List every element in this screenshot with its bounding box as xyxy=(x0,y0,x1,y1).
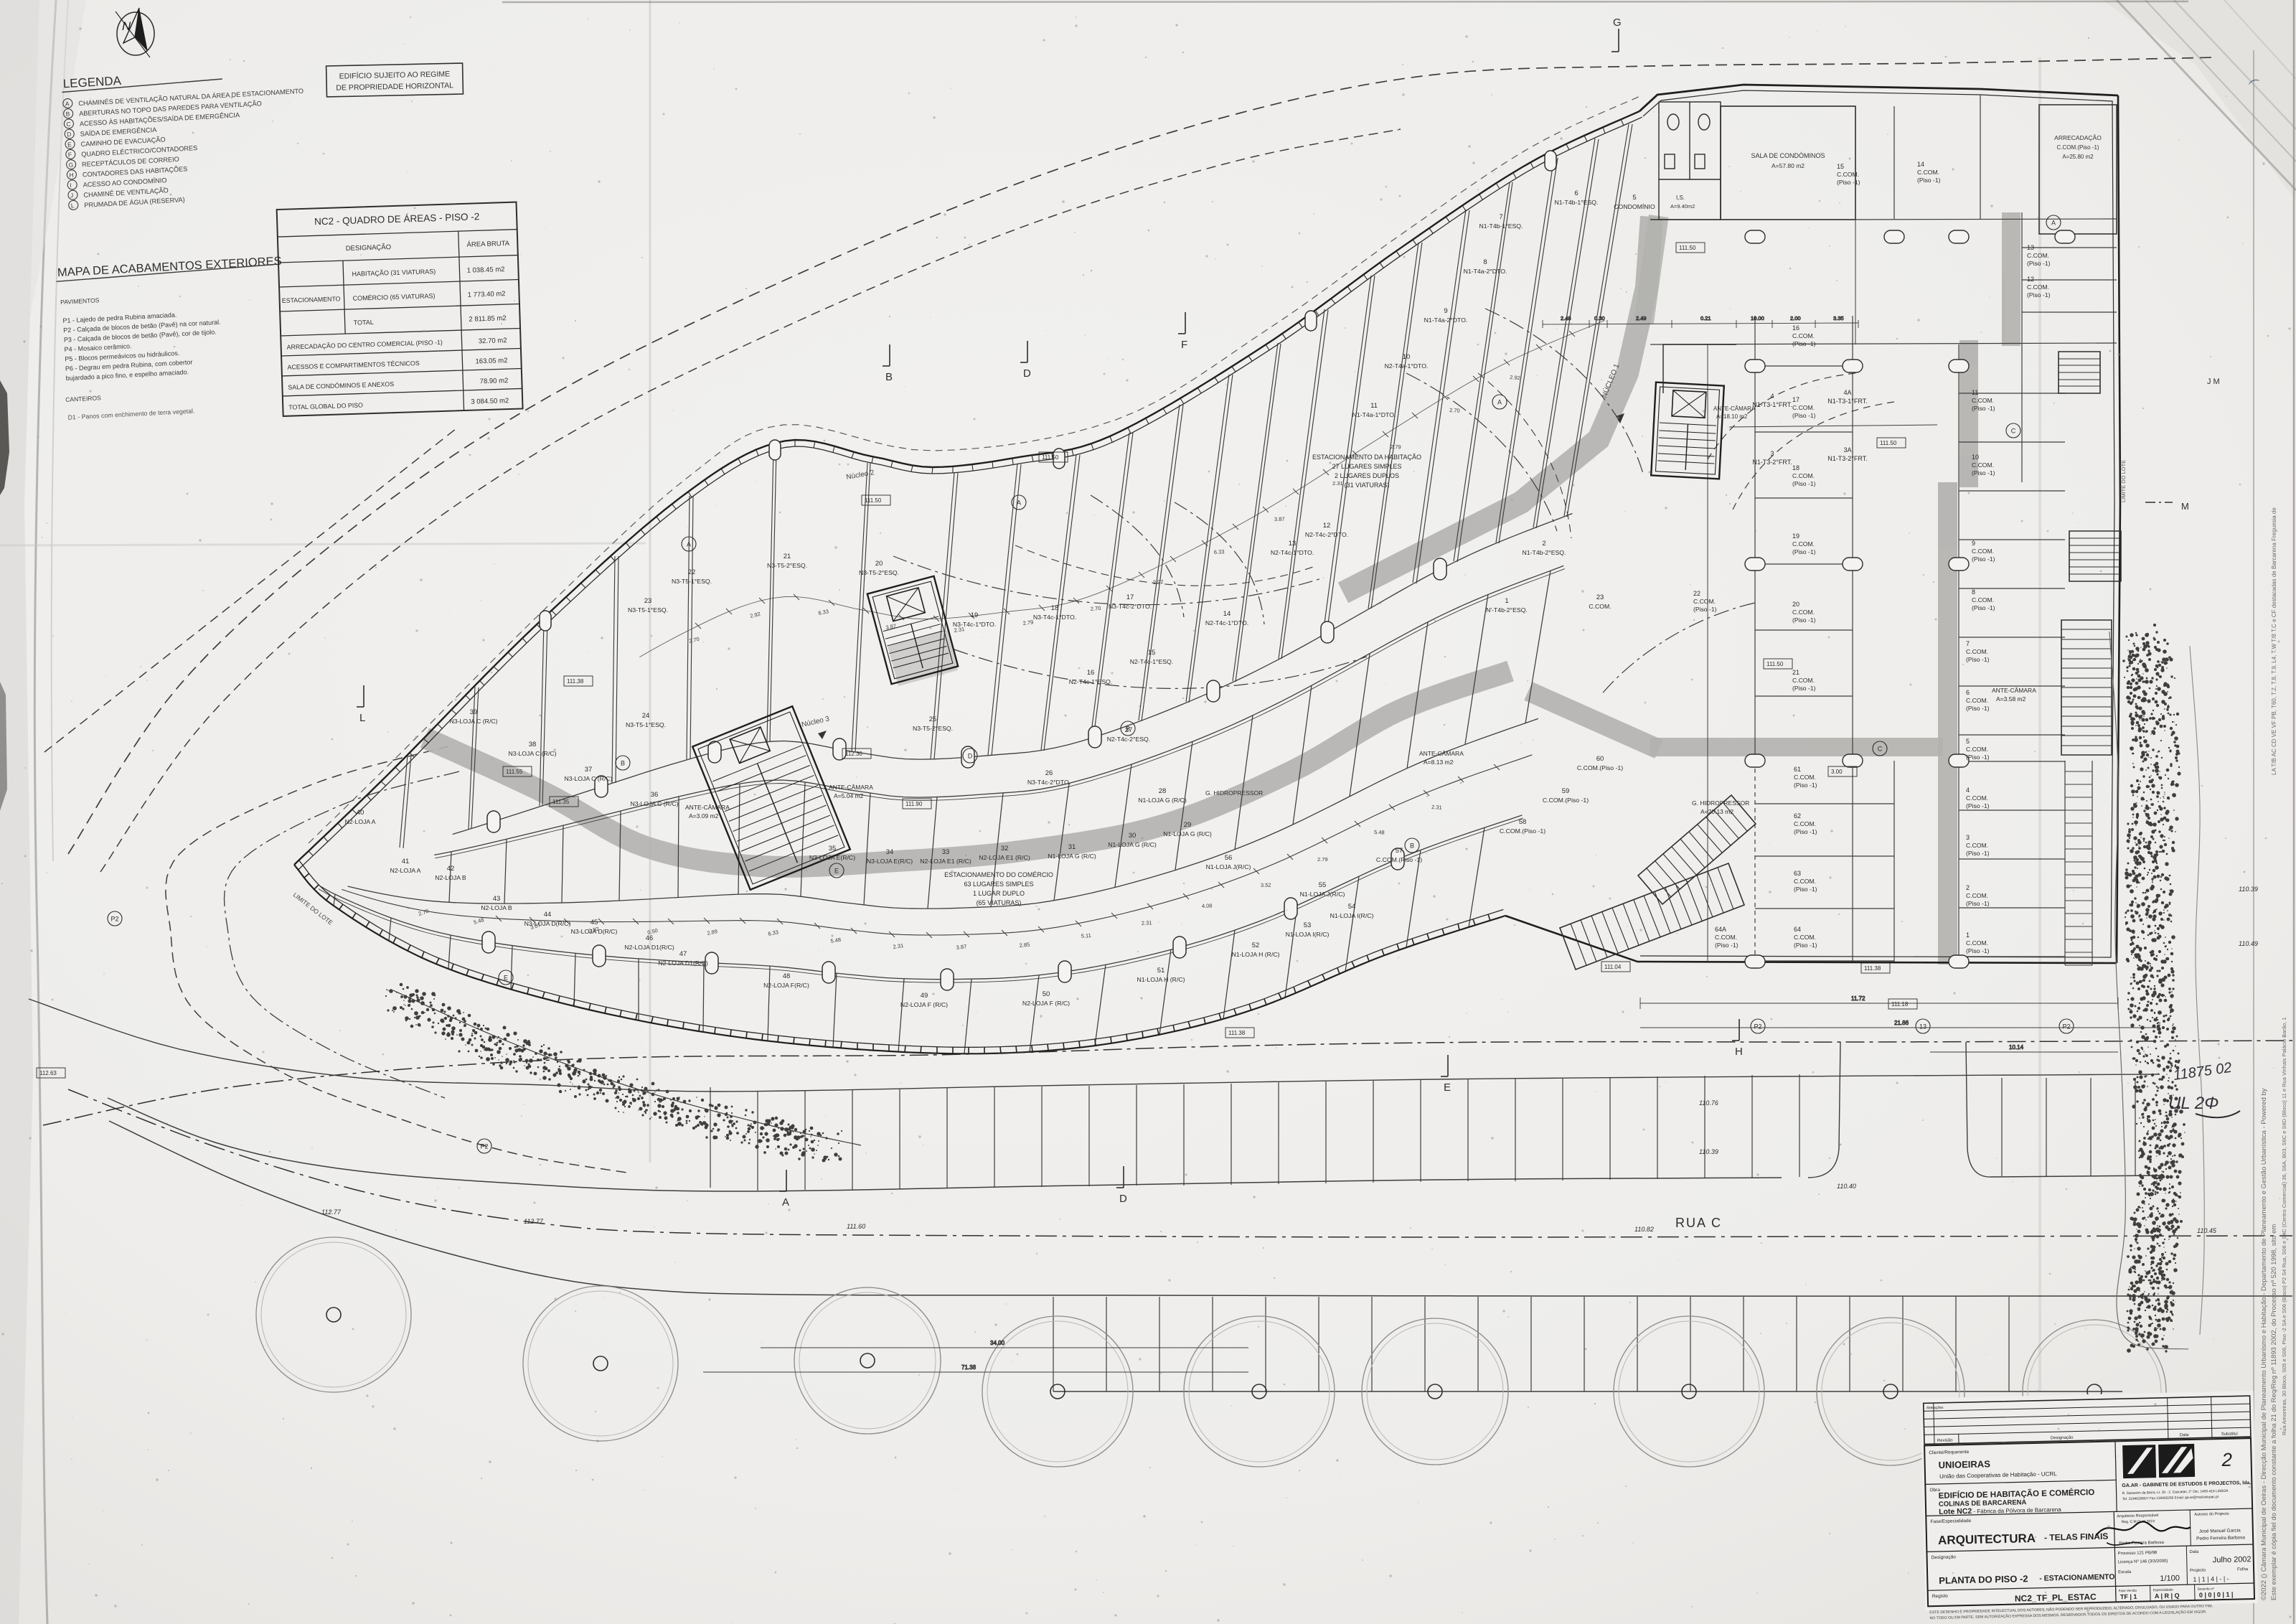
svg-text:13: 13 xyxy=(1919,1023,1926,1031)
svg-text:ANTE-CÂMARA: ANTE-CÂMARA xyxy=(1992,687,2036,694)
svg-text:José Manuel Garcia: José Manuel Garcia xyxy=(2199,1528,2241,1534)
svg-text:N3-T4c-1°DTO.: N3-T4c-1°DTO. xyxy=(953,621,996,628)
svg-text:ANTE-CÂMARA: ANTE-CÂMARA xyxy=(685,804,730,811)
svg-text:N3-T5-1°ESQ.: N3-T5-1°ESQ. xyxy=(626,721,666,728)
svg-text:ANTE-CÂMARA: ANTE-CÂMARA xyxy=(1713,405,1756,412)
svg-text:2.79: 2.79 xyxy=(1391,443,1401,451)
svg-text:111.50: 111.50 xyxy=(1880,440,1897,446)
svg-text:A | R | Q: A | R | Q xyxy=(2155,1592,2180,1600)
svg-text:(Piso -1): (Piso -1) xyxy=(1917,177,1941,184)
svg-text:2.92: 2.92 xyxy=(1153,578,1164,586)
svg-text:ESTACIONAMENTO DA HABITAÇÃO: ESTACIONAMENTO DA HABITAÇÃO xyxy=(1312,454,1421,461)
svg-text:(Piso -1): (Piso -1) xyxy=(1792,616,1816,624)
svg-text:12: 12 xyxy=(1323,522,1331,530)
svg-text:N2-T4c-2°ESQ.: N2-T4c-2°ESQ. xyxy=(1107,736,1150,743)
svg-text:(Piso -1): (Piso -1) xyxy=(1966,754,1990,761)
svg-text:110.82: 110.82 xyxy=(1634,1226,1654,1233)
svg-text:Revisão: Revisão xyxy=(1937,1438,1953,1443)
svg-text:L: L xyxy=(359,712,365,724)
svg-text:23: 23 xyxy=(1596,593,1604,601)
svg-text:64A: 64A xyxy=(1715,926,1726,933)
svg-text:- ESTACIONAMENTO: - ESTACIONAMENTO xyxy=(2039,1572,2114,1582)
svg-text:N1-LOJA H (R/C): N1-LOJA H (R/C) xyxy=(1231,951,1279,958)
svg-text:N3-LOJA D(R/C): N3-LOJA D(R/C) xyxy=(524,920,571,927)
svg-text:CONDOMÍNIO: CONDOMÍNIO xyxy=(1614,203,1655,210)
svg-text:N3-T4c-2°DTO.: N3-T4c-2°DTO. xyxy=(1109,603,1152,610)
svg-text:A: A xyxy=(782,1196,789,1208)
svg-text:E: E xyxy=(504,975,508,982)
svg-text:N2-LOJA E1 (R/C): N2-LOJA E1 (R/C) xyxy=(979,854,1030,861)
svg-text:TOTAL: TOTAL xyxy=(354,319,374,327)
svg-text:14: 14 xyxy=(1917,161,1924,168)
svg-text:C.COM.: C.COM. xyxy=(1792,404,1815,411)
svg-text:N2-LOJA D1(R/C): N2-LOJA D1(R/C) xyxy=(624,944,674,951)
svg-text:(Piso -1): (Piso -1) xyxy=(1794,828,1817,835)
svg-text:Registo: Registo xyxy=(1932,1594,1949,1600)
svg-text:N2-LOJA F (R/C): N2-LOJA F (R/C) xyxy=(1022,1000,1070,1007)
svg-text:10.14: 10.14 xyxy=(2009,1044,2024,1051)
svg-text:55: 55 xyxy=(1319,881,1327,889)
svg-text:Rua Amoreiras, 30 Bloco, S05: Rua Amoreiras, 30 Bloco, S05 e S06, Piso… xyxy=(2281,1017,2287,1435)
svg-text:N1-T4a-2°DTO.: N1-T4a-2°DTO. xyxy=(1424,316,1468,324)
svg-text:ANTE-CÂMARA: ANTE-CÂMARA xyxy=(1419,750,1464,757)
svg-text:2.49: 2.49 xyxy=(1636,315,1647,321)
svg-text:(Piso -1): (Piso -1) xyxy=(1792,685,1816,692)
svg-text:0 | 0 | 0 | 1 |: 0 | 0 | 0 | 1 | xyxy=(2199,1591,2234,1599)
svg-text:C.COM.: C.COM. xyxy=(1972,461,1994,469)
svg-text:38: 38 xyxy=(529,741,537,748)
svg-text:C.COM.: C.COM. xyxy=(2027,283,2049,291)
svg-text:3.00: 3.00 xyxy=(1831,769,1843,775)
svg-text:111.90: 111.90 xyxy=(905,801,923,807)
svg-text:C.COM.: C.COM. xyxy=(1966,648,1988,655)
svg-text:N1-LOJA I(R/C): N1-LOJA I(R/C) xyxy=(1330,912,1374,919)
svg-text:Cliente/Requerente: Cliente/Requerente xyxy=(1929,1450,1970,1455)
svg-text:112.77: 112.77 xyxy=(321,1208,342,1216)
svg-text:4A: 4A xyxy=(1843,389,1851,396)
svg-text:A=25.80 m2: A=25.80 m2 xyxy=(2062,154,2094,160)
svg-text:111.38: 111.38 xyxy=(567,678,584,685)
svg-text:32: 32 xyxy=(1001,845,1009,853)
svg-text:7: 7 xyxy=(1499,213,1502,221)
svg-text:11: 11 xyxy=(1972,389,1978,396)
svg-text:110.39: 110.39 xyxy=(2239,886,2258,893)
svg-text:14: 14 xyxy=(1223,610,1231,618)
svg-text:N1-LOJA J(R/C): N1-LOJA J(R/C) xyxy=(1300,891,1345,898)
svg-text:39: 39 xyxy=(470,708,478,716)
svg-text:43: 43 xyxy=(493,895,501,903)
svg-text:C.COM.: C.COM. xyxy=(1715,934,1737,941)
svg-text:L: L xyxy=(71,202,75,209)
svg-text:12: 12 xyxy=(2027,276,2034,283)
svg-text:N1-T4b-1°ESQ.: N1-T4b-1°ESQ. xyxy=(1555,199,1599,206)
svg-text:26: 26 xyxy=(1045,769,1053,777)
svg-text:M: M xyxy=(2181,501,2189,512)
svg-text:UNIOEIRAS: UNIOEIRAS xyxy=(1939,1458,1991,1470)
svg-text:Designação: Designação xyxy=(2051,1436,2074,1441)
svg-text:N2-LOJA F(R/C): N2-LOJA F(R/C) xyxy=(763,982,809,989)
svg-text:ARQUITECTURA: ARQUITECTURA xyxy=(1938,1531,2036,1547)
svg-text:Alterações: Alterações xyxy=(1926,1406,1944,1411)
svg-text:C.COM.: C.COM. xyxy=(1794,774,1816,781)
svg-text:SALA DE CONDÓMINOS: SALA DE CONDÓMINOS xyxy=(1751,152,1825,159)
svg-text:A: A xyxy=(687,541,691,548)
svg-text:(Piso -1): (Piso -1) xyxy=(1972,604,1995,611)
svg-text:(Piso -1): (Piso -1) xyxy=(1972,469,1995,477)
svg-text:N1-T3-2°FRT.: N1-T3-2°FRT. xyxy=(1752,459,1792,466)
svg-text:PLANTA DO PISO -2: PLANTA DO PISO -2 xyxy=(1939,1573,2028,1586)
svg-text:C.COM.(Piso -1): C.COM.(Piso -1) xyxy=(1543,797,1589,804)
svg-text:2: 2 xyxy=(1542,540,1545,548)
svg-text:N1-LOJA G (R/C): N1-LOJA G (R/C) xyxy=(1048,853,1096,860)
svg-text:32.70 m2: 32.70 m2 xyxy=(479,337,507,345)
svg-text:(Piso -1): (Piso -1) xyxy=(1792,548,1816,555)
svg-text:13: 13 xyxy=(1289,540,1297,548)
svg-text:N3-T5-2°ESQ.: N3-T5-2°ESQ. xyxy=(767,562,807,569)
svg-text:N2-LOJA B: N2-LOJA B xyxy=(481,904,512,911)
svg-text:N1-T4a-2°DTO.: N1-T4a-2°DTO. xyxy=(1464,268,1507,275)
svg-text:C.COM.(Piso -1): C.COM.(Piso -1) xyxy=(2056,144,2099,151)
svg-text:(Piso -1): (Piso -1) xyxy=(1715,942,1739,949)
svg-text:N2-T4c-1°ESQ.: N2-T4c-1°ESQ. xyxy=(1069,678,1112,685)
svg-text:LIMITE DO LOTE: LIMITE DO LOTE xyxy=(2120,460,2127,502)
svg-text:15: 15 xyxy=(1837,163,1844,170)
svg-text:2: 2 xyxy=(2221,1449,2233,1470)
svg-text:110.76: 110.76 xyxy=(1699,1099,1718,1107)
svg-text:E: E xyxy=(834,868,839,875)
svg-text:C.COM.: C.COM. xyxy=(1966,842,1988,849)
svg-text:(Piso -1): (Piso -1) xyxy=(1972,555,1995,563)
svg-text:N1-T4a-1°DTO.: N1-T4a-1°DTO. xyxy=(1352,411,1396,418)
svg-text:C.COM.: C.COM. xyxy=(1794,878,1816,885)
svg-text:60: 60 xyxy=(1596,755,1604,763)
svg-text:(Piso -1): (Piso -1) xyxy=(1966,705,1990,712)
svg-text:G. HIDROPRESSOR: G. HIDROPRESSOR xyxy=(1205,789,1263,797)
svg-text:63 LUGARES SIMPLES: 63 LUGARES SIMPLES xyxy=(964,881,1033,888)
svg-text:A=3.09 m2: A=3.09 m2 xyxy=(689,812,719,820)
svg-text:C.COM.(Piso -1): C.COM.(Piso -1) xyxy=(1376,856,1422,863)
svg-text:21.86: 21.86 xyxy=(1894,1020,1909,1026)
svg-text:N2-T4c-1°DTO.: N2-T4c-1°DTO. xyxy=(1271,549,1314,556)
svg-text:45: 45 xyxy=(591,919,598,926)
svg-text:13: 13 xyxy=(2027,244,2034,251)
svg-text:2 811.85 m2: 2 811.85 m2 xyxy=(469,314,506,324)
svg-text:N1-LOJA G (R/C): N1-LOJA G (R/C) xyxy=(1138,797,1187,804)
svg-text:J: J xyxy=(70,192,74,199)
svg-text:(Piso -1): (Piso -1) xyxy=(1966,947,1990,954)
svg-text:E: E xyxy=(1444,1081,1451,1094)
svg-text:A=9.40m2: A=9.40m2 xyxy=(1670,203,1695,210)
svg-text:C.COM.: C.COM. xyxy=(1972,596,1994,604)
svg-text:(Piso -1): (Piso -1) xyxy=(1794,886,1817,893)
svg-text:A=5.04 m2: A=5.04 m2 xyxy=(834,792,864,799)
svg-text:C.COM.: C.COM. xyxy=(1972,548,1994,555)
svg-text:DESIGNAÇÃO: DESIGNAÇÃO xyxy=(346,243,392,253)
svg-text:N3-LOJA C (R/C): N3-LOJA C (R/C) xyxy=(564,775,612,782)
svg-text:C.COM.: C.COM. xyxy=(1792,472,1815,479)
svg-text:63: 63 xyxy=(1794,870,1801,877)
svg-text:Processo 121 PB/98: Processo 121 PB/98 xyxy=(2117,1551,2157,1556)
svg-text:62: 62 xyxy=(1794,812,1801,820)
svg-text:N2-T4c-1°ESQ.: N2-T4c-1°ESQ. xyxy=(1130,658,1173,665)
svg-text:18: 18 xyxy=(1792,464,1799,471)
svg-text:N: N xyxy=(122,19,131,33)
svg-text:18: 18 xyxy=(1051,604,1059,612)
svg-text:11.72: 11.72 xyxy=(1851,995,1865,1002)
svg-text:112.77: 112.77 xyxy=(524,1218,544,1225)
svg-text:30: 30 xyxy=(1129,832,1137,840)
svg-text:54: 54 xyxy=(1348,903,1356,911)
svg-text:1/100: 1/100 xyxy=(2160,1574,2180,1583)
svg-text:C.COM.: C.COM. xyxy=(1794,820,1816,827)
svg-text:Substitui: Substitui xyxy=(2221,1432,2238,1437)
svg-text:N3-T4c-2°DTO.: N3-T4c-2°DTO. xyxy=(1027,779,1071,786)
svg-text:0.21: 0.21 xyxy=(1700,315,1711,321)
svg-text:G: G xyxy=(1613,17,1622,29)
svg-text:Fase/Especialidade: Fase/Especialidade xyxy=(1930,1519,1971,1524)
svg-text:Projecto: Projecto xyxy=(2190,1569,2206,1574)
svg-text:B: B xyxy=(621,760,625,767)
svg-text:25: 25 xyxy=(929,715,937,723)
svg-text:B: B xyxy=(1410,842,1414,850)
svg-text:5.11: 5.11 xyxy=(1081,932,1091,939)
svg-text:C.COM.: C.COM. xyxy=(1837,171,1859,178)
svg-text:(Piso -1): (Piso -1) xyxy=(2027,291,2051,299)
svg-text:(Piso -1): (Piso -1) xyxy=(1966,802,1990,809)
svg-text:Escala: Escala xyxy=(2118,1570,2132,1574)
svg-text:35: 35 xyxy=(829,845,837,853)
svg-text:N1-T4b-2°ESQ.: N1-T4b-2°ESQ. xyxy=(1523,549,1566,556)
svg-text:51: 51 xyxy=(1157,967,1165,975)
svg-text:19: 19 xyxy=(1792,532,1799,540)
svg-text:49: 49 xyxy=(921,992,928,1000)
svg-text:(Piso -1): (Piso -1) xyxy=(1972,405,1995,412)
svg-text:2.70: 2.70 xyxy=(1090,605,1101,612)
svg-text:UL 2Φ: UL 2Φ xyxy=(2168,1094,2219,1113)
svg-text:N3-T5-2°ESQ.: N3-T5-2°ESQ. xyxy=(913,725,953,732)
svg-text:1 | 1 | 4 | - | -: 1 | 1 | 4 | - | - xyxy=(2193,1575,2229,1583)
svg-text:(Piso -1): (Piso -1) xyxy=(1794,782,1817,789)
svg-text:11: 11 xyxy=(1370,402,1378,410)
svg-text:6.33: 6.33 xyxy=(1214,548,1225,555)
svg-text:21: 21 xyxy=(784,553,791,560)
svg-text:2.31: 2.31 xyxy=(1142,919,1152,926)
svg-text:27 LUGARES SIMPLES: 27 LUGARES SIMPLES xyxy=(1332,463,1401,470)
svg-text:111.50: 111.50 xyxy=(1766,661,1784,667)
svg-text:2.79: 2.79 xyxy=(1317,856,1328,863)
svg-text:N3-T5-2°ESQ.: N3-T5-2°ESQ. xyxy=(859,569,899,576)
svg-text:8: 8 xyxy=(1972,588,1975,596)
svg-text:2 LUGARES DUPLOS: 2 LUGARES DUPLOS xyxy=(1335,472,1399,479)
svg-text:C.COM.(Piso -1): C.COM.(Piso -1) xyxy=(1577,764,1623,771)
svg-text:31: 31 xyxy=(1068,843,1076,851)
svg-text:2.92: 2.92 xyxy=(1510,374,1520,381)
svg-text:111.50: 111.50 xyxy=(865,497,882,504)
svg-text:3.87: 3.87 xyxy=(1274,516,1285,522)
svg-text:1: 1 xyxy=(1966,931,1970,939)
svg-text:111.50: 111.50 xyxy=(1679,245,1696,251)
svg-text:111.60: 111.60 xyxy=(847,1223,865,1230)
svg-text:6: 6 xyxy=(1574,189,1578,197)
svg-text:2.85: 2.85 xyxy=(1019,942,1030,949)
svg-text:163.05 m2: 163.05 m2 xyxy=(475,357,507,365)
svg-text:(65 VIATURAS): (65 VIATURAS) xyxy=(977,899,1022,906)
svg-text:2.79: 2.79 xyxy=(1022,619,1034,626)
svg-text:Autores do Projecto: Autores do Projecto xyxy=(2194,1512,2229,1517)
svg-text:57: 57 xyxy=(1396,847,1403,855)
svg-text:17: 17 xyxy=(1126,593,1134,601)
svg-text:1 773.40 m2: 1 773.40 m2 xyxy=(468,290,506,299)
svg-text:N2-LOJA E1 (R/C): N2-LOJA E1 (R/C) xyxy=(920,858,971,865)
svg-text:F: F xyxy=(68,151,72,158)
svg-text:N2-LOJA A: N2-LOJA A xyxy=(345,818,376,825)
svg-text:44: 44 xyxy=(544,911,552,919)
svg-text:27: 27 xyxy=(1125,726,1133,734)
svg-text:A: A xyxy=(1497,399,1502,406)
svg-text:(Piso -1): (Piso -1) xyxy=(1837,179,1860,186)
svg-text:3.52: 3.52 xyxy=(1261,882,1271,888)
svg-text:(Piso -1): (Piso -1) xyxy=(1966,900,1990,907)
svg-text:ARRECADAÇÃO: ARRECADAÇÃO xyxy=(2054,134,2102,141)
svg-text:N2-T4c-1°DTO.: N2-T4c-1°DTO. xyxy=(1205,619,1248,626)
svg-text:N1-T3-2°FRT.: N1-T3-2°FRT. xyxy=(1827,455,1867,462)
svg-text:19: 19 xyxy=(971,611,979,619)
svg-text:N2-LOJA F (R/C): N2-LOJA F (R/C) xyxy=(900,1001,948,1008)
svg-text:C.COM.: C.COM. xyxy=(1589,603,1611,610)
svg-text:H: H xyxy=(69,172,74,179)
svg-text:©2022 () Câmara Municip: ©2022 () Câmara Municipal de Oeiras - Di… xyxy=(2260,1088,2268,1600)
svg-text:J M: J M xyxy=(2207,377,2220,386)
svg-text:58: 58 xyxy=(1519,818,1527,826)
svg-text:Julho 2002: Julho 2002 xyxy=(2213,1555,2252,1564)
svg-text:28: 28 xyxy=(1159,787,1167,795)
svg-text:1: 1 xyxy=(1505,597,1508,605)
svg-text:4.08: 4.08 xyxy=(1202,902,1213,909)
svg-text:C.COM.: C.COM. xyxy=(1693,598,1716,605)
svg-text:N1-LOJA I(R/C): N1-LOJA I(R/C) xyxy=(1286,931,1330,938)
svg-text:C: C xyxy=(1878,746,1883,753)
svg-text:C.COM.: C.COM. xyxy=(1966,746,1988,753)
svg-text:C: C xyxy=(66,121,71,128)
svg-text:Designação: Designação xyxy=(1932,1554,1957,1560)
svg-text:41: 41 xyxy=(402,858,410,865)
svg-text:N1-LOJA J(R/C): N1-LOJA J(R/C) xyxy=(1206,863,1251,870)
svg-text:110.40: 110.40 xyxy=(1837,1183,1856,1190)
svg-text:D: D xyxy=(67,131,72,138)
svg-text:C.COM.: C.COM. xyxy=(1966,939,1988,947)
svg-text:10: 10 xyxy=(1403,353,1411,361)
svg-text:46: 46 xyxy=(646,934,654,942)
svg-text:112.63: 112.63 xyxy=(39,1070,57,1076)
svg-text:C.COM.: C.COM. xyxy=(1966,794,1988,802)
svg-text:111.55: 111.55 xyxy=(506,769,523,775)
svg-text:N3-LOJA D(R/C): N3-LOJA D(R/C) xyxy=(571,928,618,935)
svg-text:1 038.45 m2: 1 038.45 m2 xyxy=(466,266,504,275)
svg-text:C.COM.: C.COM. xyxy=(1966,892,1988,899)
svg-text:D: D xyxy=(968,753,973,760)
svg-text:A=18.10 m2: A=18.10 m2 xyxy=(1716,413,1748,420)
svg-text:N'-T4b-2°ESQ.: N'-T4b-2°ESQ. xyxy=(1486,606,1528,614)
svg-text:2.48: 2.48 xyxy=(1561,315,1571,321)
svg-text:N1-LOJA G (R/C): N1-LOJA G (R/C) xyxy=(1108,841,1157,848)
svg-text:N1-T3-1°FRT.: N1-T3-1°FRT. xyxy=(1827,398,1867,405)
svg-text:53: 53 xyxy=(1304,921,1312,929)
svg-text:61: 61 xyxy=(1794,766,1801,773)
svg-text:Especialidade: Especialidade xyxy=(2153,1588,2174,1592)
svg-text:2.31: 2.31 xyxy=(1431,804,1442,811)
svg-text:N3-T5-1°ESQ.: N3-T5-1°ESQ. xyxy=(672,578,712,585)
svg-text:5.48: 5.48 xyxy=(1374,829,1385,836)
svg-text:N1-LOJA G (R/C): N1-LOJA G (R/C) xyxy=(1163,830,1212,837)
svg-text:A: A xyxy=(65,100,70,107)
svg-text:111.38: 111.38 xyxy=(1864,965,1881,972)
svg-text:29: 29 xyxy=(1184,821,1192,829)
svg-text:A=3.58 m2: A=3.58 m2 xyxy=(1996,695,2026,703)
svg-text:42: 42 xyxy=(447,865,455,873)
svg-text:34: 34 xyxy=(886,848,894,856)
svg-text:2: 2 xyxy=(1966,884,1970,891)
svg-text:110.39: 110.39 xyxy=(1699,1148,1718,1155)
svg-text:N3-LOJA C (R/C): N3-LOJA C (R/C) xyxy=(630,800,678,807)
svg-text:3.35: 3.35 xyxy=(1833,315,1844,321)
svg-text:N3-LOJA C (R/C): N3-LOJA C (R/C) xyxy=(449,718,497,725)
svg-text:10: 10 xyxy=(1972,454,1979,461)
svg-text:C.COM.: C.COM. xyxy=(1966,697,1988,704)
svg-text:B: B xyxy=(65,111,70,118)
svg-text:C.COM.: C.COM. xyxy=(1792,540,1815,548)
svg-text:RUA C: RUA C xyxy=(1675,1216,1722,1230)
svg-text:33: 33 xyxy=(942,848,950,856)
svg-text:C.COM.: C.COM. xyxy=(1794,934,1816,941)
svg-text:6: 6 xyxy=(1966,689,1970,696)
svg-text:E: E xyxy=(67,141,72,148)
svg-text:8: 8 xyxy=(1483,258,1487,266)
svg-text:Data: Data xyxy=(2180,1433,2189,1437)
svg-text:20: 20 xyxy=(875,560,883,568)
svg-text:17: 17 xyxy=(1792,396,1799,403)
svg-text:(Piso -1): (Piso -1) xyxy=(1794,942,1817,949)
svg-text:110.45: 110.45 xyxy=(2197,1227,2217,1234)
svg-text:N3-LOJA E(R/C): N3-LOJA E(R/C) xyxy=(809,854,855,861)
svg-text:C.COM.: C.COM. xyxy=(1792,677,1815,684)
svg-text:P2: P2 xyxy=(2062,1023,2070,1031)
svg-text:N1-LOJA H (R/C): N1-LOJA H (R/C) xyxy=(1137,976,1185,983)
svg-text:(Piso -1): (Piso -1) xyxy=(2027,260,2051,267)
svg-text:Este exemplar é cópia fiel do: Este exemplar é cópia fiel do documento … xyxy=(2270,1224,2278,1600)
svg-text:C.COM.: C.COM. xyxy=(2027,252,2049,259)
svg-text:20: 20 xyxy=(1792,601,1799,608)
svg-text:2.70: 2.70 xyxy=(1449,407,1460,414)
svg-text:16: 16 xyxy=(1087,669,1095,677)
svg-text:71.38: 71.38 xyxy=(961,1364,977,1371)
svg-text:B: B xyxy=(885,371,893,383)
svg-text:C.COM.(Piso -1): C.COM.(Piso -1) xyxy=(1500,827,1545,835)
svg-text:5: 5 xyxy=(1966,738,1970,745)
svg-text:111.35: 111.35 xyxy=(552,799,570,805)
svg-text:LA T/B AC CD VE VF PB,: LA T/B AC CD VE VF PB, T60, T.2, T.8, T.… xyxy=(2271,507,2277,775)
svg-text:9: 9 xyxy=(1444,307,1447,315)
svg-text:59: 59 xyxy=(1562,787,1570,795)
svg-text:(Piso -1): (Piso -1) xyxy=(1792,480,1816,487)
svg-text:C.COM.: C.COM. xyxy=(1972,397,1994,404)
svg-text:P2: P2 xyxy=(1754,1023,1761,1031)
svg-text:110.49: 110.49 xyxy=(2239,940,2258,947)
svg-text:C.COM.: C.COM. xyxy=(1792,332,1815,339)
svg-text:112.30: 112.30 xyxy=(845,751,862,757)
svg-text:N2-LOJA D1(R/C): N2-LOJA D1(R/C) xyxy=(658,959,708,967)
svg-text:N3-T4c-1°DTO.: N3-T4c-1°DTO. xyxy=(1033,614,1076,621)
svg-text:Folha: Folha xyxy=(2237,1567,2249,1572)
